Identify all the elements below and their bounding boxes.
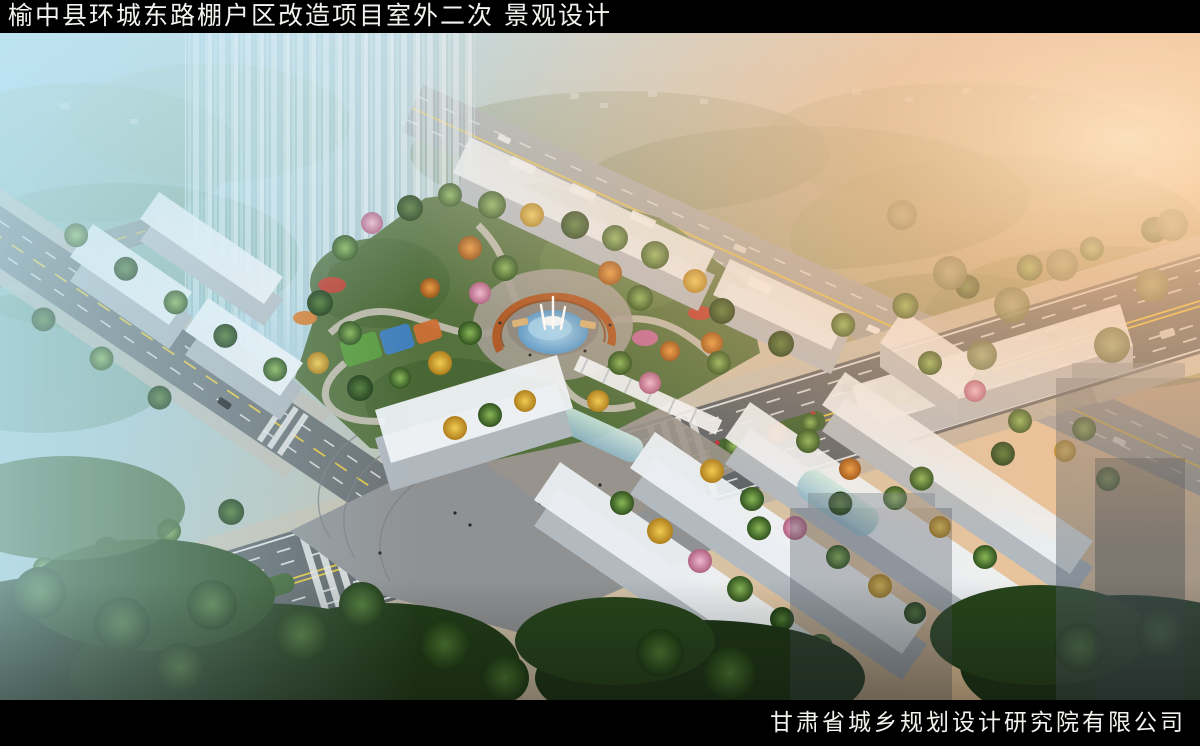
title-bar: 榆中县环城东路棚户区改造项目室外二次 景观设计 bbox=[0, 0, 1200, 33]
vignette bbox=[0, 33, 1200, 700]
poster: 榆中县环城东路棚户区改造项目室外二次 景观设计 bbox=[0, 0, 1200, 746]
credit-bar: 甘肃省城乡规划设计研究院有限公司 bbox=[0, 700, 1200, 746]
project-title: 榆中县环城东路棚户区改造项目室外二次 景观设计 bbox=[8, 1, 612, 30]
design-institute-name: 甘肃省城乡规划设计研究院有限公司 bbox=[770, 710, 1186, 736]
aerial-rendering bbox=[0, 33, 1200, 700]
rendering-canvas bbox=[0, 33, 1200, 700]
